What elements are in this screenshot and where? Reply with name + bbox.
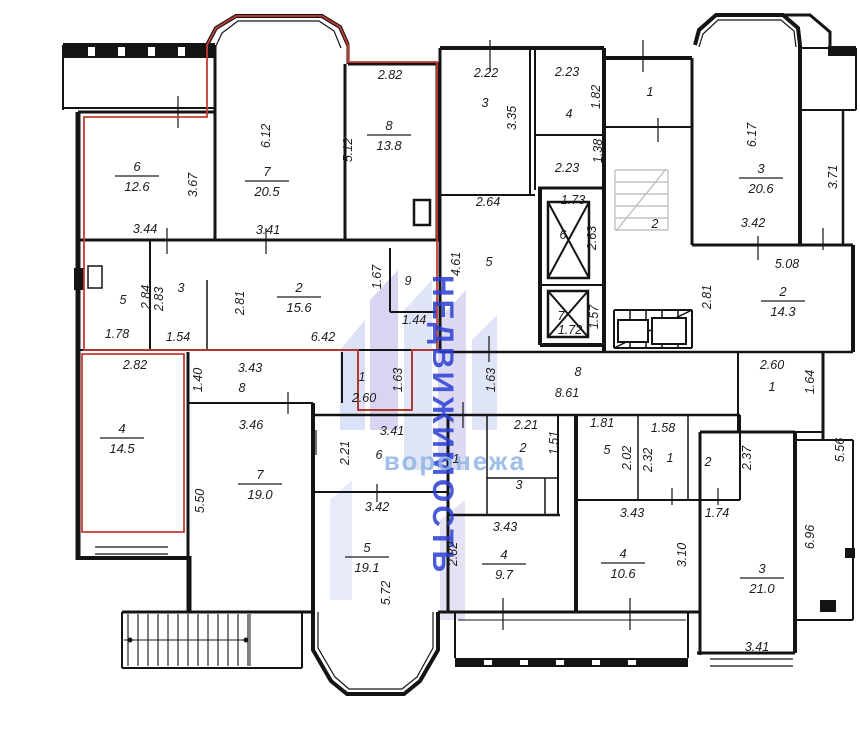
dimension-label: 2.23 [554, 65, 579, 79]
room-number-label: 7 [263, 164, 271, 179]
dimension-label: 1.67 [370, 264, 384, 289]
dimension-label: 1.54 [166, 330, 190, 344]
dimension-label: 2.02 [620, 446, 634, 471]
dimension-label: 2.64 [475, 195, 500, 209]
dimension-label: 2.37 [740, 445, 754, 471]
dimension-label: 3.41 [745, 640, 769, 654]
dimension-label: 3.42 [365, 500, 389, 514]
dimension-label: 4 [566, 107, 573, 121]
dimension-label: 1 [667, 451, 674, 465]
watermark-building-shape [330, 480, 352, 600]
dimension-label: 2.82 [122, 358, 147, 372]
dimension-label: 1.73 [561, 193, 585, 207]
dimension-label: 3.43 [493, 520, 517, 534]
dimension-label: 3.41 [256, 223, 280, 237]
staircase-dot [244, 638, 249, 643]
dimension-label: 1.74 [705, 506, 729, 520]
dimension-label: 3.67 [186, 172, 200, 197]
room-number-label: 2 [778, 284, 787, 299]
room-area-label: 14.5 [109, 441, 135, 456]
wall-detail [74, 268, 84, 290]
room-number-label: 3 [758, 561, 766, 576]
room-area-label: 19.0 [247, 487, 273, 502]
room-area-label: 20.5 [253, 184, 280, 199]
dimension-label: 1 [453, 452, 460, 466]
dimension-label: 6 [560, 228, 567, 242]
window-box [414, 200, 430, 225]
room-number-label: 7 [256, 467, 264, 482]
dimension-label: 4.61 [449, 252, 463, 276]
dimension-label: 5 [486, 255, 493, 269]
dimension-label: 1.51 [547, 431, 561, 455]
dimension-label: 5.50 [193, 489, 207, 513]
window-box [88, 266, 102, 288]
room-area-label: 20.6 [747, 181, 774, 196]
room-area-label: 12.6 [124, 179, 150, 194]
wall-detail [520, 660, 528, 665]
room-area-label: 19.1 [354, 560, 379, 575]
wall-detail [178, 47, 185, 56]
watermark-vertical-text: НЕДВИЖИМОСТЬ [426, 275, 459, 575]
dimension-label: 1.82 [589, 85, 603, 109]
room-number-label: 2 [294, 280, 303, 295]
room-area-label: 15.6 [286, 300, 312, 315]
dimension-label: 1.72 [558, 323, 582, 337]
wall-detail [148, 47, 155, 56]
dimension-label: 3 [482, 96, 489, 110]
dimension-label: 5.08 [775, 257, 799, 271]
dimension-label: 1.57 [587, 304, 601, 329]
staircase-dot [128, 638, 133, 643]
dimension-label: 2.32 [641, 448, 655, 473]
dimension-label: 2.63 [585, 226, 599, 251]
wall-detail [484, 660, 492, 665]
dimension-label: 1.81 [590, 416, 614, 430]
dimension-label: 2.82 [377, 68, 402, 82]
room-number-label: 8 [385, 118, 393, 133]
room-area-label: 13.8 [376, 138, 402, 153]
dimension-label: 2.83 [152, 287, 166, 312]
wall-detail [118, 47, 125, 56]
dimension-label: 2 [651, 217, 659, 231]
wall-detail [828, 46, 856, 56]
wall-detail [592, 660, 600, 665]
room-number-label: 3 [757, 161, 765, 176]
dimension-label: 1 [359, 370, 366, 384]
dimension-label: 3.43 [238, 361, 262, 375]
dimension-label: 2.60 [351, 391, 376, 405]
dimension-label: 3.42 [741, 216, 765, 230]
dimension-label: 2.82 [446, 542, 460, 567]
floor-plan: НЕДВИЖИМОСТЬворонежа3.443.676.123.415.12… [0, 0, 860, 731]
dimension-label: 8 [575, 365, 582, 379]
dimension-label: 2 [519, 441, 527, 455]
dimension-label: 2.23 [554, 161, 579, 175]
dimension-label: 3.35 [505, 106, 519, 130]
dimension-label: 3.46 [239, 418, 263, 432]
dimension-label: 5 [120, 293, 127, 307]
room-area-label: 21.0 [748, 581, 775, 596]
dimension-label: 5 [604, 443, 611, 457]
dimension-label: 2.81 [233, 291, 247, 316]
dimension-label: 6 [376, 448, 383, 462]
dimension-label: 2.21 [513, 418, 538, 432]
dimension-label: 3.71 [826, 165, 840, 189]
dimension-label: 3.41 [380, 424, 404, 438]
room-area-label: 10.6 [610, 566, 636, 581]
wall-detail [845, 548, 855, 558]
dimension-label: 8 [239, 381, 246, 395]
dimension-label: 1.58 [651, 421, 675, 435]
room-area-label: 9.7 [495, 567, 514, 582]
dimension-label: 3.10 [675, 543, 689, 567]
floor-plan-canvas: НЕДВИЖИМОСТЬворонежа3.443.676.123.415.12… [0, 0, 860, 731]
room-number-label: 4 [619, 546, 626, 561]
dimension-label: 2.81 [700, 285, 714, 310]
dimension-label: 5.12 [341, 138, 355, 162]
dimension-label: 6.96 [803, 525, 817, 549]
dimension-label: 2.21 [338, 441, 352, 466]
dimension-label: 8.61 [555, 386, 579, 400]
room-number-label: 6 [133, 159, 141, 174]
room-number-label: 5 [363, 540, 371, 555]
dimension-label: 1 [769, 380, 776, 394]
dimension-label: 2.22 [473, 66, 498, 80]
dimension-label: 5.56 [833, 438, 847, 462]
dimension-label: 1.38 [591, 139, 605, 163]
window-box [652, 318, 686, 344]
dimension-label: 1.78 [105, 327, 129, 341]
wall-detail [88, 47, 95, 56]
dimension-label: 3.43 [620, 506, 644, 520]
room-number-label: 4 [118, 421, 125, 436]
dimension-label: 1 [647, 85, 654, 99]
dimension-label: 1.63 [391, 368, 405, 392]
room-number-label: 4 [500, 547, 507, 562]
dimension-label: 6.42 [311, 330, 335, 344]
dimension-label: 5.72 [379, 581, 393, 605]
dimension-label: 6.17 [745, 122, 759, 147]
dimension-label: 3.44 [133, 222, 157, 236]
room-area-label: 14.3 [770, 304, 796, 319]
wall-detail [628, 660, 636, 665]
wall-detail [820, 600, 836, 612]
dimension-label: 2 [704, 455, 712, 469]
dimension-label: 1.64 [803, 370, 817, 394]
dimension-label: 1.40 [191, 368, 205, 392]
dimension-label: 3 [178, 281, 185, 295]
dimension-label: 3 [516, 478, 523, 492]
window-box [618, 320, 648, 342]
dimension-label: 1.63 [484, 368, 498, 392]
dimension-label: 9 [405, 274, 412, 288]
dimension-label: 1.44 [402, 313, 426, 327]
wall-detail [556, 660, 564, 665]
dimension-label: 6.12 [259, 124, 273, 148]
dimension-label: 7 [558, 309, 566, 323]
dimension-label: 2.60 [759, 358, 784, 372]
dimension-label: 2.84 [139, 285, 153, 310]
wall-detail [63, 45, 215, 58]
